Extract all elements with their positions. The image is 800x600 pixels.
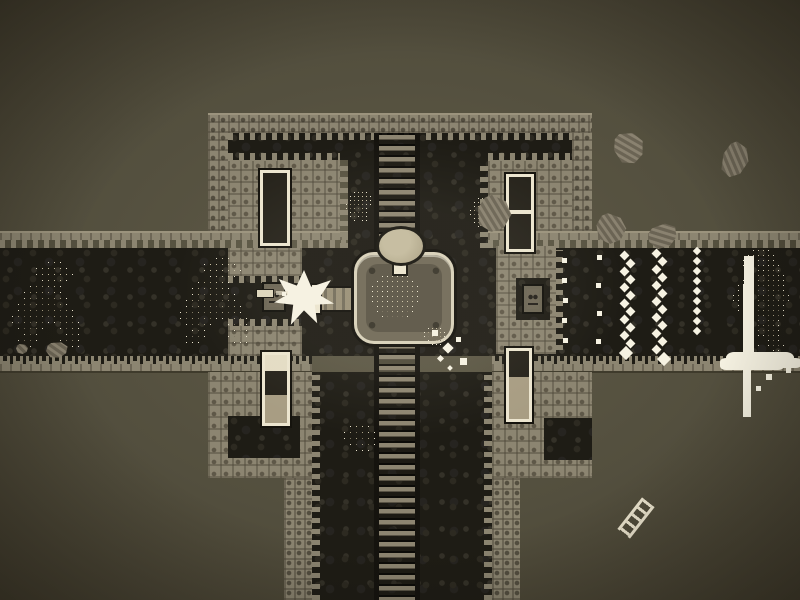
flying-debris xyxy=(594,212,629,247)
flying-debris xyxy=(610,129,647,168)
flying-debris xyxy=(473,192,515,235)
spark xyxy=(460,358,467,365)
spark xyxy=(456,337,461,342)
milk-stream xyxy=(744,256,754,358)
flying-debris xyxy=(716,138,754,181)
milk-drip xyxy=(756,386,761,391)
flying-debris xyxy=(16,344,28,354)
milk-drip xyxy=(766,374,772,380)
flying-debris xyxy=(644,218,682,253)
flying-debris xyxy=(45,340,69,360)
bullet-projectile xyxy=(256,289,274,298)
game-viewport[interactable] xyxy=(0,0,800,600)
muzzle-flash xyxy=(274,270,334,326)
effects-layer xyxy=(0,0,800,600)
spark xyxy=(432,330,438,336)
milk-drip xyxy=(786,368,791,373)
spark xyxy=(437,355,444,362)
spark xyxy=(442,342,453,353)
spark xyxy=(282,292,286,296)
ladder-fragment-debris xyxy=(617,497,654,538)
spark xyxy=(447,365,453,371)
milk-puddle xyxy=(726,352,794,368)
